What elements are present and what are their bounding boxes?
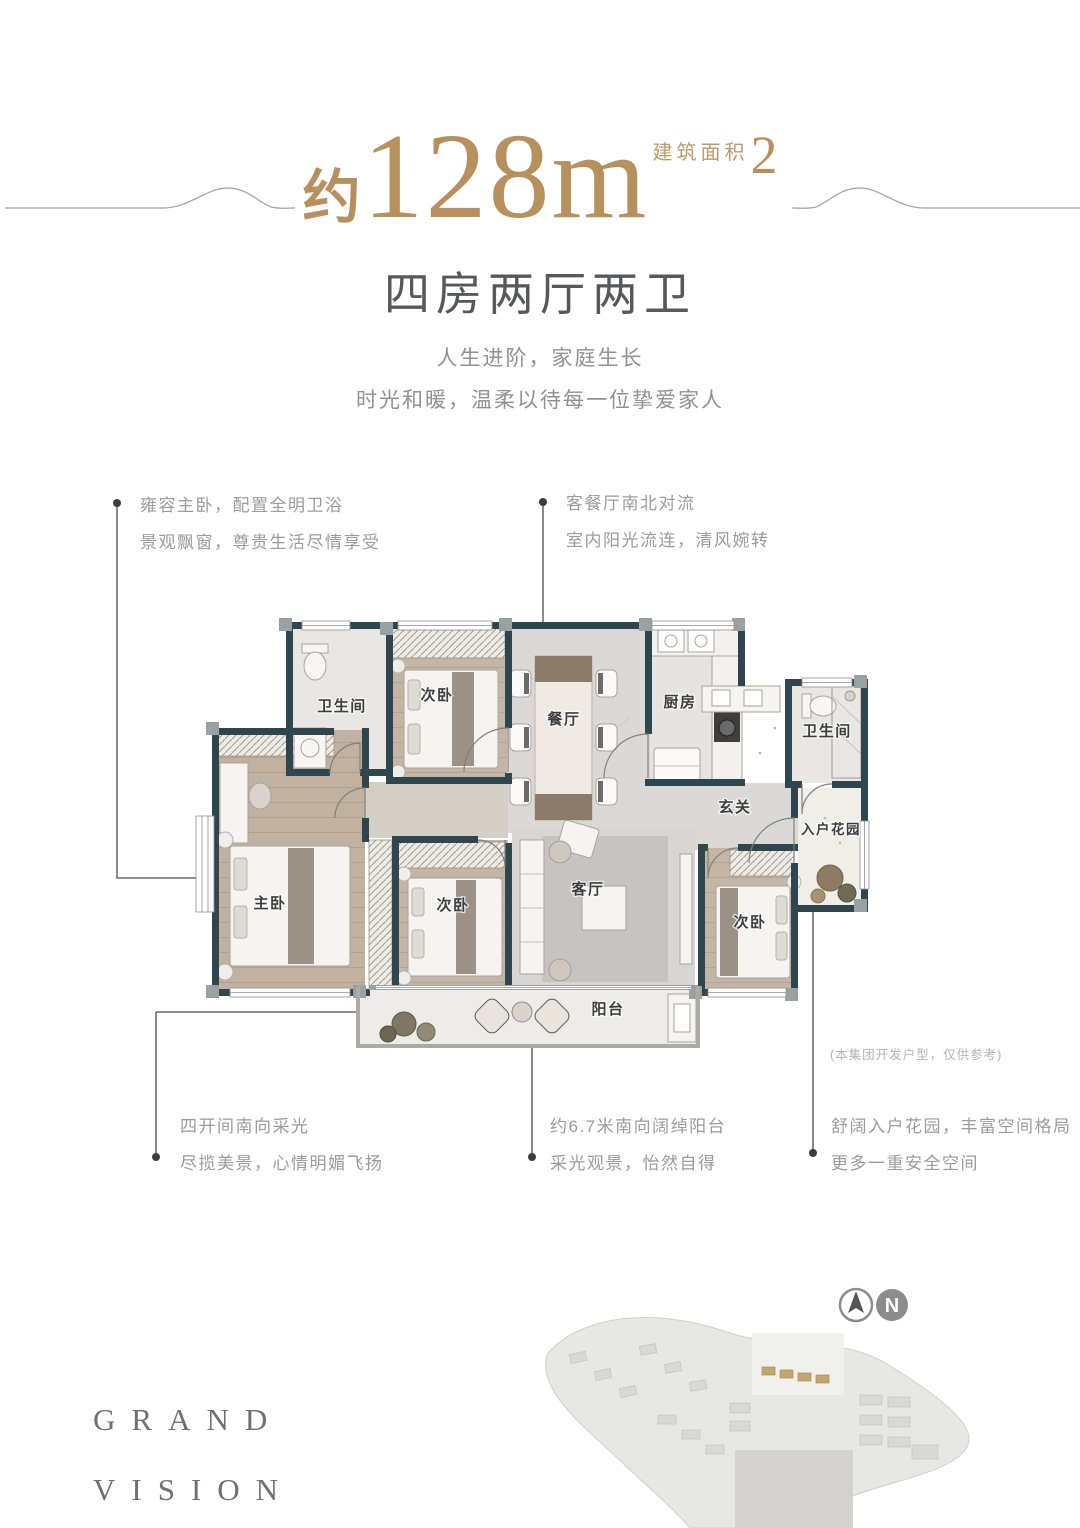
callout-south-bays-line2: 尽揽美景，心情明媚飞扬 (180, 1145, 384, 1182)
tagline-line1: 人生进阶，家庭生长 (0, 338, 1080, 380)
area-title: 约 128m 建筑面积 2 (0, 116, 1080, 238)
room-label-bath1: 卫生间 (317, 697, 367, 715)
room-label-entry-garden: 入户花园 (801, 821, 861, 837)
room-label-bed2: 次卧 (420, 686, 453, 704)
brand-logo: GRAND VISION (93, 1385, 294, 1525)
callout-entry-garden-line1: 舒阔入户花园，丰富空间格局 (831, 1108, 1072, 1145)
callout-master-line1: 雍容主卧，配置全明卫浴 (140, 487, 381, 524)
area-label: 建筑面积 (652, 136, 748, 165)
bed-secondary-top (391, 659, 498, 779)
callout-living-dining-line1: 客餐厅南北对流 (566, 485, 770, 522)
dining-table (510, 656, 617, 820)
callout-balcony: 约6.7米南向阔绰阳台 采光观景，怡然自得 (550, 1108, 726, 1182)
floorplan: 卫生间 次卧 餐厅 厨房 卫生间 玄关 入户花园 主卧 次卧 客厅 次卧 阳台 (190, 578, 890, 1078)
site-map: N (540, 1275, 980, 1528)
room-label-balcony: 阳台 (591, 1000, 624, 1018)
bed-secondary-mid (397, 867, 502, 985)
living-furniture (520, 820, 692, 982)
brand-line1: GRAND (93, 1385, 294, 1455)
poster-page: 约 128m 建筑面积 2 四房两厅两卫 人生进阶，家庭生长 时光和暖，温柔以待… (0, 0, 1080, 1528)
callout-master: 雍容主卧，配置全明卫浴 景观飘窗，尊贵生活尽情享受 (140, 487, 381, 561)
callout-balcony-line1: 约6.7米南向阔绰阳台 (550, 1108, 726, 1145)
area-number: 128m (363, 116, 649, 238)
callout-master-line2: 景观飘窗，尊贵生活尽情享受 (140, 524, 381, 561)
room-label-dining: 餐厅 (547, 710, 580, 728)
callout-balcony-line2: 采光观景，怡然自得 (550, 1145, 726, 1182)
area-superscript: 2 (750, 128, 777, 182)
foyer-console (702, 686, 780, 712)
tagline: 人生进阶，家庭生长 时光和暖，温柔以待每一位挚爱家人 (0, 338, 1080, 422)
room-label-bed3: 次卧 (436, 896, 469, 914)
area-sup-group: 建筑面积 2 (652, 128, 777, 182)
room-label-foyer: 玄关 (718, 798, 751, 816)
brand-line2: VISION (93, 1455, 294, 1525)
tagline-line2: 时光和暖，温柔以待每一位挚爱家人 (0, 380, 1080, 422)
compass-label: N (885, 1295, 899, 1317)
room-label-kitchen: 厨房 (663, 693, 696, 711)
callout-living-dining: 客餐厅南北对流 室内阳光流连，清风婉转 (566, 485, 770, 559)
toilet-bath1 (302, 644, 328, 680)
room-label-living: 客厅 (570, 880, 604, 898)
area-prefix: 约 (303, 150, 363, 234)
callout-south-bays-line1: 四开间南向采光 (180, 1108, 384, 1145)
site-large-block (735, 1450, 853, 1528)
layout-subtitle: 四房两厅两卫 (0, 258, 1080, 324)
callout-entry-garden-line2: 更多一重安全空间 (831, 1145, 1072, 1182)
room-label-bed4: 次卧 (733, 913, 766, 931)
room-label-master: 主卧 (253, 894, 286, 912)
callout-living-dining-line2: 室内阳光流连，清风婉转 (566, 522, 770, 559)
callout-entry-garden: 舒阔入户花园，丰富空间格局 更多一重安全空间 (831, 1108, 1072, 1182)
compass-north-icon: N (840, 1289, 908, 1321)
room-label-bath2: 卫生间 (802, 722, 852, 740)
callout-south-bays: 四开间南向采光 尽揽美景，心情明媚飞扬 (180, 1108, 384, 1182)
